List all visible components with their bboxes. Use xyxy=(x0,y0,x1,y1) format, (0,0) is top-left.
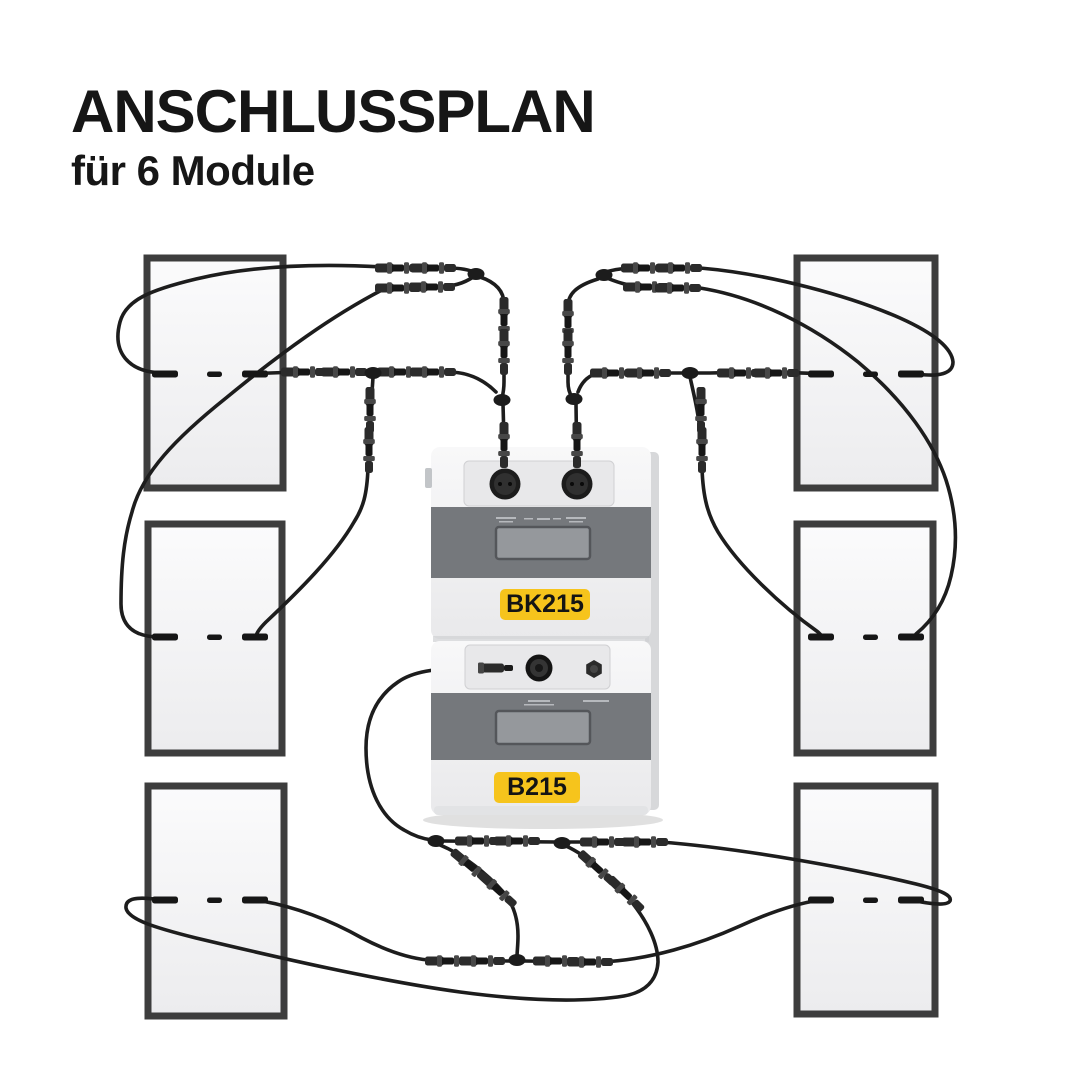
pv-port-left xyxy=(490,469,521,500)
mc4-connector-pair xyxy=(410,262,456,274)
y-branch-node xyxy=(509,954,526,966)
mc4-connector-pair xyxy=(321,366,367,378)
mc4-connector-pair xyxy=(494,835,540,847)
mc4-connector-pair xyxy=(622,836,668,848)
bk215-unit: BK215 xyxy=(425,447,651,639)
y-branch-node xyxy=(566,393,583,405)
pv-port-right xyxy=(562,469,593,500)
mc4-connector-pair xyxy=(410,366,456,378)
bk215-label: BK215 xyxy=(500,589,590,620)
mc4-connector-pair xyxy=(562,329,574,375)
mc4-connector-pair xyxy=(477,870,519,909)
device-stack: BK215 xyxy=(423,447,663,829)
mc4-connector-pair xyxy=(655,282,701,294)
mc4-connector-pair xyxy=(567,956,613,968)
y-branch-node xyxy=(365,367,382,379)
cable xyxy=(524,900,820,962)
mc4-connector-pair xyxy=(459,955,505,967)
mc4-connector-pair xyxy=(281,366,327,378)
device-base-lip xyxy=(434,806,648,815)
mc4-connector-pair xyxy=(580,836,626,848)
mc4-connector-pair xyxy=(409,281,455,293)
mc4-connector-pair xyxy=(753,367,799,379)
bk215-label-text: BK215 xyxy=(506,590,584,618)
display-window-bk215 xyxy=(496,527,590,559)
b215-unit: B215 xyxy=(431,641,651,815)
y-branch-node xyxy=(554,837,571,849)
b215-label: B215 xyxy=(494,772,580,803)
mc4-connector-pair xyxy=(625,367,671,379)
mc4-connector-pair xyxy=(656,262,702,274)
mc4-connector-pair xyxy=(696,427,708,473)
side-tab xyxy=(425,468,432,488)
y-branch-node xyxy=(596,269,613,281)
y-branch-node xyxy=(428,835,445,847)
mc4-connector-pair xyxy=(363,427,375,473)
infographic-canvas: ANSCHLUSSPLAN für 6 Module xyxy=(0,0,1080,1080)
b215-round-port xyxy=(526,655,553,682)
b215-hex-port-center xyxy=(590,665,598,673)
cable xyxy=(262,901,510,961)
y-branch-node xyxy=(468,268,485,280)
y-branch-node xyxy=(494,394,511,406)
mc4-connector-pair xyxy=(498,329,510,375)
y-branch-node xyxy=(682,367,699,379)
display-window-b215 xyxy=(496,711,590,744)
wiring-diagram: BK215 xyxy=(0,0,1080,1080)
mc4-connector-pair xyxy=(605,874,646,914)
mc4-connector-pair xyxy=(364,387,376,433)
b215-label-text: B215 xyxy=(507,773,567,801)
